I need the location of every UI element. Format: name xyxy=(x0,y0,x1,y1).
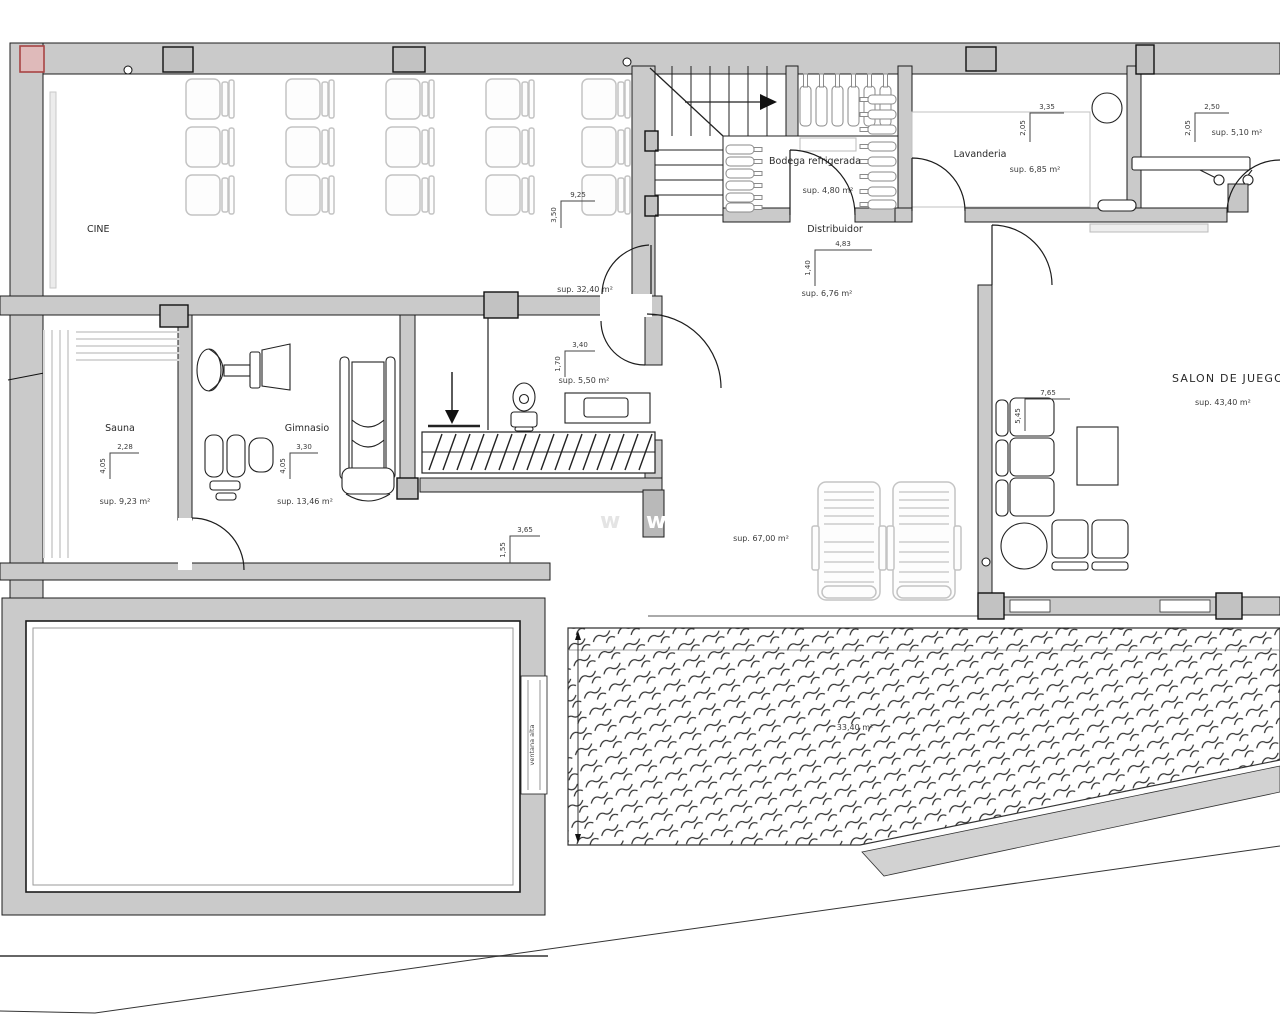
door-gap-sauna xyxy=(178,518,192,570)
cine-seats xyxy=(186,79,630,215)
toilet xyxy=(511,383,537,431)
room-cine: CINE sup. 32,40 m² 9,25 3,50 xyxy=(50,79,630,294)
salon-area: sup. 43,40 m² xyxy=(1195,398,1251,407)
sink-basin xyxy=(584,398,628,417)
svg-text:1,40: 1,40 xyxy=(804,260,812,276)
bodega-area: sup. 4,80 m² xyxy=(803,186,854,195)
svg-text:3,50: 3,50 xyxy=(550,207,558,223)
gimnasio-dim: 3,30 4,05 xyxy=(279,443,318,479)
room-bodega: Bodega refrigerada sup. 4,80 m² xyxy=(726,74,896,212)
door-gap-cine xyxy=(600,294,652,317)
pillar-stair-2 xyxy=(645,196,658,216)
wall-salon-left xyxy=(978,285,992,597)
wall-lavanderia-bottom-left xyxy=(895,208,912,222)
cine-area: sup. 32,40 m² xyxy=(557,285,613,294)
room-gimnasio: Gimnasio 3,30 4,05 sup. 13,46 m² xyxy=(197,344,395,506)
ventana-alta-label: ventana alta xyxy=(528,724,536,765)
gimnasio-label: Gimnasio xyxy=(285,423,330,434)
pillar-top-2 xyxy=(393,47,425,72)
plancha-unit xyxy=(1228,184,1248,212)
watermark-text: w xyxy=(600,509,620,534)
svg-text:2,28: 2,28 xyxy=(117,443,133,451)
pillar-mid-1 xyxy=(160,305,188,327)
ironing-board xyxy=(1132,157,1250,170)
svg-text:3,65: 3,65 xyxy=(517,526,533,534)
svg-text:2,05: 2,05 xyxy=(1019,120,1027,136)
svg-text:4,83: 4,83 xyxy=(835,240,851,248)
estar-area: sup. 67,00 m² xyxy=(733,534,789,543)
svg-text:5,45: 5,45 xyxy=(1014,408,1022,424)
svg-text:2,05: 2,05 xyxy=(1184,120,1192,136)
distribuidor-area: sup. 6,76 m² xyxy=(802,289,853,298)
wall-south-rooms xyxy=(0,563,550,580)
salon-label: SALON DE JUEGOS xyxy=(1172,372,1280,385)
room-aseo: 3,40 1,70 sup. 5,50 m² xyxy=(428,318,650,431)
hinge-marker-2 xyxy=(623,58,631,66)
estar-dim: 3,65 1,55 xyxy=(499,526,540,563)
svg-text:4,05: 4,05 xyxy=(99,458,107,474)
area-estar: sup. 67,00 m² 3,65 1,55 w w xyxy=(499,482,961,600)
wall-under-closet xyxy=(420,478,662,492)
lavanderia-dim: 3,35 2,05 xyxy=(1019,103,1064,142)
floorplan-drawing: CINE sup. 32,40 m² 9,25 3,50 Bod xyxy=(0,0,1280,1024)
wall-sauna-gym xyxy=(178,315,192,520)
pillar-salon-1 xyxy=(978,593,1004,619)
bodega-label: Bodega refrigerada xyxy=(769,156,861,167)
drain-arrow-icon xyxy=(445,410,459,424)
watermark-text-2: w xyxy=(646,509,666,534)
svg-text:1,55: 1,55 xyxy=(499,542,507,558)
svg-text:3,30: 3,30 xyxy=(296,443,312,451)
wall-cine-bottom xyxy=(0,296,662,315)
svg-text:1,70: 1,70 xyxy=(554,356,562,372)
floorplan-page: CINE sup. 32,40 m² 9,25 3,50 Bod xyxy=(0,0,1280,1024)
wall-bodega-lavanderia xyxy=(898,66,912,208)
sauna-label: Sauna xyxy=(105,423,135,434)
lavanderia-washer xyxy=(1098,200,1136,211)
terrace-area: 33,40 m² xyxy=(837,723,873,732)
sun-lounger-1 xyxy=(812,482,886,600)
weight-bench xyxy=(205,435,273,500)
pillar-salon-2 xyxy=(1216,593,1242,619)
svg-text:3,40: 3,40 xyxy=(572,341,588,349)
game-table xyxy=(1077,427,1118,485)
pillar-top-3 xyxy=(966,47,996,71)
pool-basin xyxy=(26,621,520,892)
aseo-dim: 3,40 1,70 xyxy=(554,341,595,377)
wall-lavanderia-bottom-right xyxy=(965,208,1227,222)
pillar-mid-2 xyxy=(484,292,518,318)
svg-text:3,35: 3,35 xyxy=(1039,103,1055,111)
gimnasio-area: sup. 13,46 m² xyxy=(277,497,333,506)
room-distribuidor: Distribuidor 4,83 1,40 sup. 6,76 m² xyxy=(802,224,872,298)
sun-lounger-2 xyxy=(887,482,961,600)
red-marker-pillar xyxy=(20,46,44,72)
room-sauna: Sauna 2,28 4,05 sup. 9,23 m² xyxy=(44,330,180,558)
armchairs xyxy=(1052,520,1128,570)
wall-lavanderia-right xyxy=(1127,66,1141,208)
wall-bath-upper xyxy=(645,315,662,365)
pillar-gym xyxy=(397,478,418,499)
door-salon xyxy=(992,225,1052,285)
pillar-stair-1 xyxy=(645,131,658,151)
svg-text:2,50: 2,50 xyxy=(1204,103,1220,111)
treadmill xyxy=(340,357,395,501)
aseo-area: sup. 5,50 m² xyxy=(559,376,610,385)
terrace: 33,40 m² xyxy=(568,628,1280,876)
cine-screen xyxy=(50,92,56,288)
lavanderia-sink xyxy=(1092,93,1122,123)
bench-outside xyxy=(1090,224,1208,232)
exercise-bike xyxy=(197,344,290,391)
door-sauna xyxy=(192,518,244,570)
distribuidor-dim: 4,83 1,40 xyxy=(804,240,872,286)
pool: ventana alta xyxy=(2,598,547,915)
door-aseo xyxy=(601,321,645,365)
salon-window-2 xyxy=(1160,600,1210,612)
lavanderia-area: sup. 6,85 m² xyxy=(1010,165,1061,174)
stairs xyxy=(650,66,777,215)
wall-exterior-left xyxy=(10,43,43,600)
pillar-top-4 xyxy=(1136,45,1154,74)
room-lavanderia: Lavanderia sup. 6,85 m² 3,35 2,05 xyxy=(912,93,1136,211)
pillar-top-1 xyxy=(163,47,193,72)
sauna-benches xyxy=(44,330,180,558)
wall-gym-bath xyxy=(400,315,415,478)
sauna-dim: 2,28 4,05 xyxy=(99,443,139,479)
plancha-area: sup. 5,10 m² xyxy=(1212,128,1263,137)
sauna-area: sup. 9,23 m² xyxy=(100,497,151,506)
distribuidor-label: Distribuidor xyxy=(807,224,863,235)
board-foot-1 xyxy=(1214,175,1224,185)
stair-arrow-icon xyxy=(760,94,777,110)
salon-window-1 xyxy=(1010,600,1050,612)
hinge-marker-1 xyxy=(124,66,132,74)
room-salon: SALON DE JUEGOS sup. 43,40 m² 7,65 5,45 xyxy=(996,372,1280,570)
round-table xyxy=(1001,523,1047,569)
svg-text:4,05: 4,05 xyxy=(279,458,287,474)
lavanderia-label: Lavanderia xyxy=(954,149,1007,160)
cine-label: CINE xyxy=(87,224,110,235)
door-lavanderia xyxy=(912,158,965,211)
bodega-shelf xyxy=(800,138,856,151)
wall-stair-bodega xyxy=(786,66,798,136)
closet xyxy=(422,432,655,473)
wall-bodega-bottom-right xyxy=(855,208,898,222)
hinge-marker-3 xyxy=(982,558,990,566)
svg-text:9,25: 9,25 xyxy=(570,191,586,199)
svg-text:7,65: 7,65 xyxy=(1040,389,1056,397)
